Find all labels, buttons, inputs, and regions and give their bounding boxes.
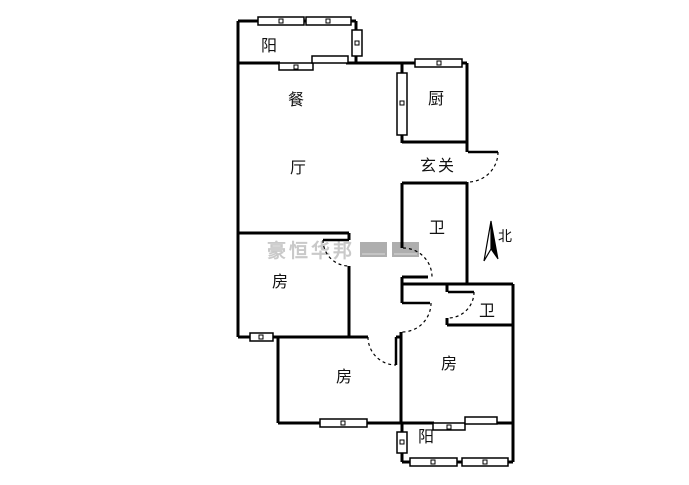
window-marker: [400, 440, 404, 444]
room-label-entry: 玄关: [420, 159, 456, 175]
window-marker: [447, 425, 451, 429]
floor-plan: 豪恒华邦: [0, 0, 689, 485]
room-label-dining: 餐: [288, 93, 306, 109]
window-marker: [279, 19, 283, 23]
window-marker: [483, 460, 487, 464]
door-arc: [368, 337, 396, 365]
north-label: 北: [498, 229, 512, 243]
room-label-living: 厅: [290, 161, 308, 177]
north-arrow-icon: [484, 221, 498, 261]
room-label-balcony-bottom: 阳: [418, 430, 436, 446]
door-arc: [323, 240, 349, 266]
room-label-room-bottom-right: 房: [441, 357, 459, 373]
windows: [250, 17, 508, 466]
north-needle-left: [484, 221, 491, 261]
door-arc: [403, 248, 432, 277]
window-marker: [431, 460, 435, 464]
north-needle-right: [491, 221, 498, 259]
window-marker: [326, 19, 330, 23]
sliding-door-panel: [465, 417, 497, 424]
window-marker: [294, 65, 298, 69]
window-markers: [259, 19, 487, 464]
entry-door-arc: [468, 152, 498, 182]
window-marker: [259, 335, 263, 339]
sliding-door-panel: [312, 56, 348, 63]
room-label-room-mid: 房: [272, 275, 290, 291]
window-marker: [355, 41, 359, 45]
floor-plan-drawing: [0, 0, 689, 485]
door-arc: [402, 303, 431, 332]
room-label-bath-2: 卫: [479, 304, 497, 320]
room-label-kitchen: 厨: [428, 92, 446, 108]
walls: [238, 21, 513, 462]
room-label-balcony-top: 阳: [261, 39, 279, 55]
window-marker: [341, 421, 345, 425]
door-arc: [448, 292, 474, 318]
room-label-bath-1: 卫: [429, 221, 447, 237]
room-label-room-bottom-left: 房: [336, 370, 354, 386]
window-marker: [437, 61, 441, 65]
window-marker: [400, 101, 404, 105]
